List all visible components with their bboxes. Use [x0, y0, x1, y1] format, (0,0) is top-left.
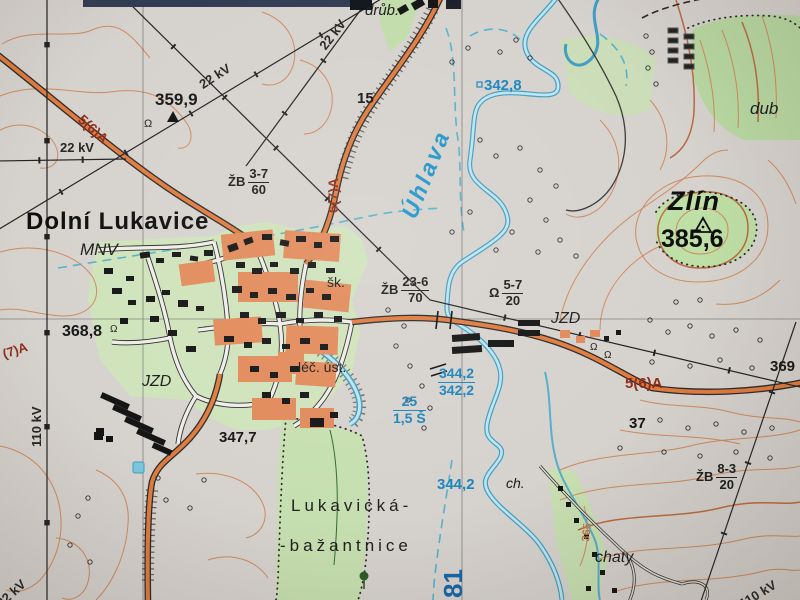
label-bridge-zb37-prefix: ŽB [228, 175, 245, 188]
label-road-56a-e: 5(6)A [625, 376, 663, 391]
label-110kv-w: 110 kV [30, 407, 43, 448]
label-forest-lukavicka: Lukavická- [291, 497, 412, 514]
sym-chapel-4: Ω [604, 351, 611, 361]
map-labels-layer: drůb.22 kV22 kV5(6)A359,915342,8dub22 kV… [0, 0, 800, 600]
sym-chapel-1: Ω [144, 119, 152, 130]
label-bridge-zb236: ŽB23-670 [381, 275, 429, 304]
label-jzd-west: JZD [142, 374, 171, 390]
label-bridge-5720-numerator: 5-7 [502, 278, 523, 294]
label-110kv-se: 110 kV [737, 578, 778, 600]
label-school: šk. [327, 275, 345, 289]
label-bridge-5720-prefix: Ω [489, 286, 499, 299]
sym-chapel-3: Ω [590, 343, 597, 353]
label-road-67a: 6(7)A [326, 178, 340, 213]
label-water-344-2-342-2: 344,2342,2 [438, 366, 475, 397]
label-bridge-zb236-prefix: ŽB [381, 283, 398, 296]
label-22kv-sw: 22 kV [0, 577, 28, 600]
label-bridge-zb236-numerator: 23-6 [401, 275, 429, 291]
label-bridge-zb37-numerator: 3-7 [248, 167, 269, 183]
label-bridge-zb236-denominator: 70 [401, 291, 429, 305]
label-water-25-15s-fraction: 251,5 Š [393, 394, 426, 425]
label-forest-bazantnice: -bažantnice [280, 537, 412, 554]
label-water-344-2: 344,2 [437, 477, 475, 492]
label-22kv-h: 22 kV [60, 141, 94, 154]
label-road-7a-w: (7)A [1, 340, 29, 360]
label-water-25-15s-denominator: 1,5 Š [393, 411, 426, 426]
label-elev-369: 369 [770, 359, 795, 374]
label-22kv-a: 22 kV [317, 17, 348, 52]
label-peak-zlin: Zlín [668, 188, 720, 215]
label-river-uhlava: Úhlava [398, 126, 454, 221]
label-lec-ust: léč. úst. [298, 360, 346, 374]
label-bridge-5720-fraction: 5-720 [502, 278, 523, 307]
label-water-25-15s-numerator: 25 [393, 394, 426, 411]
label-22kv-b: 22 kV [197, 61, 233, 90]
label-river-km-81: 81 [440, 569, 466, 598]
label-bridge-zb37-denominator: 60 [248, 183, 269, 197]
label-water-25-15s: 251,5 Š [393, 394, 426, 425]
label-37: 37 [629, 416, 646, 431]
label-mnv: MNV [80, 241, 118, 258]
label-jzd-east: JZD [551, 311, 580, 327]
label-bridge-zb37-fraction: 3-760 [248, 167, 269, 196]
label-bridge-zb83-fraction: 8-320 [716, 462, 737, 491]
label-elev-359-9: 359,9 [155, 91, 198, 108]
label-elev-347-7: 347,7 [219, 430, 257, 445]
label-bridge-5720-denominator: 20 [502, 294, 523, 308]
label-water-344-2-342-2-numerator: 344,2 [438, 366, 475, 383]
label-water-344-2-342-2-denominator: 342,2 [438, 383, 475, 398]
label-ch: ch. [506, 476, 525, 490]
label-town-dolni-lukavice: Dolní Lukavice [26, 210, 209, 234]
label-water-344-2-342-2-fraction: 344,2342,2 [438, 366, 475, 397]
sym-chapel-2: Ω [110, 325, 117, 335]
label-water-342-8: 342,8 [484, 78, 522, 93]
label-dub: dub [750, 100, 778, 117]
label-bridge-zb37: ŽB3-760 [228, 167, 269, 196]
label-elev-368-8: 368,8 [62, 324, 102, 340]
label-15: 15 [357, 91, 374, 106]
label-bridge-zb83-denominator: 20 [716, 478, 737, 492]
label-bridge-zb236-fraction: 23-670 [401, 275, 429, 304]
label-chaty: chaty [595, 550, 633, 566]
label-bridge-5720: Ω5-720 [489, 278, 523, 307]
label-farm-drub: drůb. [365, 3, 399, 18]
label-bridge-zb83-numerator: 8-3 [716, 462, 737, 478]
label-elev-385-6: 385,6 [661, 227, 724, 252]
label-bridge-zb83: ŽB8-320 [696, 462, 737, 491]
label-contour-365: 365 [581, 523, 594, 542]
label-bridge-zb83-prefix: ŽB [696, 470, 713, 483]
topographic-map: drůb.22 kV22 kV5(6)A359,915342,8dub22 kV… [0, 0, 800, 600]
